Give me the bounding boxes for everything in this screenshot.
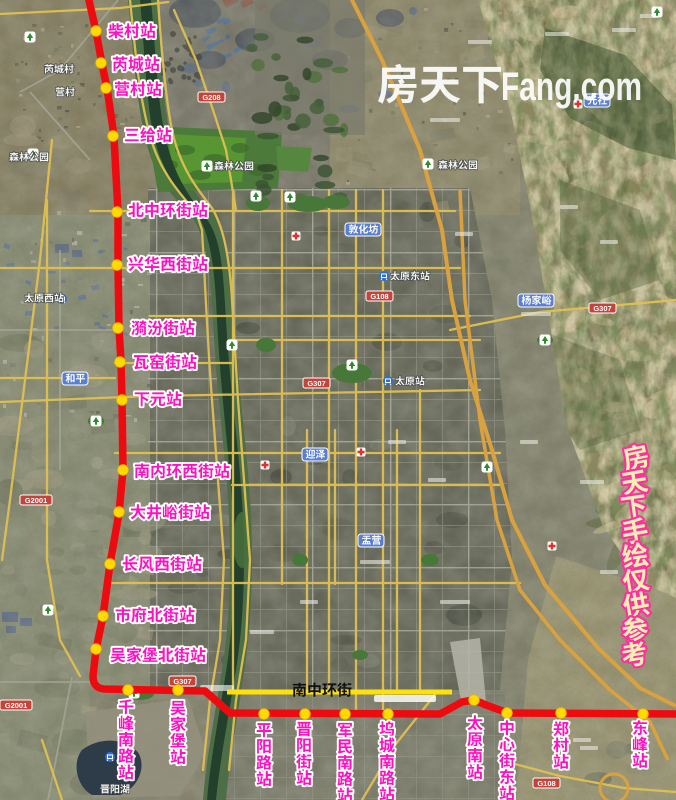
svg-text:Fang.com: Fang.com [501, 65, 642, 109]
svg-text:G108: G108 [370, 292, 388, 301]
svg-text:G208: G208 [202, 93, 220, 102]
svg-text:G2001: G2001 [25, 496, 48, 505]
svg-text:G2001: G2001 [5, 701, 28, 710]
svg-text:G108: G108 [537, 779, 555, 788]
svg-text:G307: G307 [307, 379, 325, 388]
svg-text:G307: G307 [593, 304, 611, 313]
